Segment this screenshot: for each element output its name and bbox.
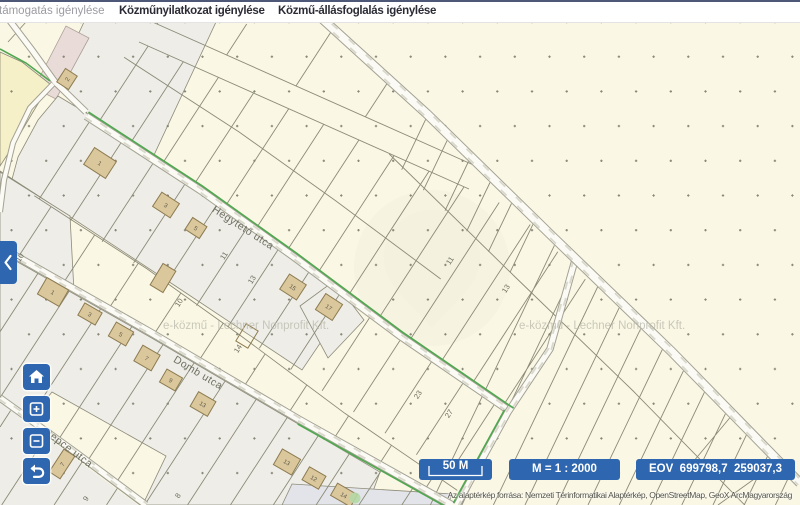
svg-text:e-közmű - Lechner Nonprofit Kf: e-közmű - Lechner Nonprofit Kft. <box>163 320 329 332</box>
svg-text:e-közmű - Lechner Nonprofit Kf: e-közmű - Lechner Nonprofit Kft. <box>519 320 685 332</box>
